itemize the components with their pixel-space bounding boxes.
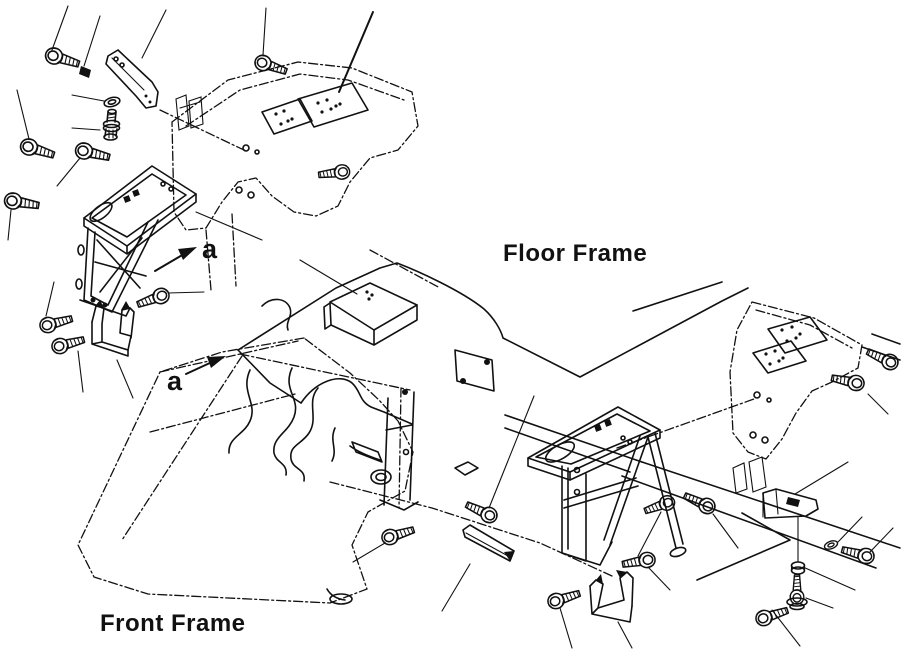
section-a-label-upper: a bbox=[202, 234, 218, 264]
plate-box-cover bbox=[324, 283, 417, 345]
small-shim-plate bbox=[176, 95, 203, 130]
flange-bolt-vertical bbox=[787, 575, 807, 610]
floor-frame-label: Floor Frame bbox=[503, 240, 647, 267]
hex-bolt-icon bbox=[50, 332, 86, 355]
section-a-label-lower: a bbox=[167, 366, 183, 396]
hex-bolt-icon bbox=[463, 498, 499, 526]
hex-bolt-icon bbox=[681, 489, 717, 517]
clip-nut bbox=[79, 66, 91, 78]
hex-bolt-icon bbox=[18, 137, 56, 163]
left-stand-bracket bbox=[76, 166, 196, 316]
parts-diagram-page: Floor Frame Front Frame a a bbox=[0, 0, 901, 649]
hex-bolt-icon bbox=[74, 141, 111, 165]
left-console-cover bbox=[172, 62, 418, 230]
hex-bolts bbox=[3, 46, 900, 628]
hex-bolt-icon bbox=[318, 164, 351, 182]
hex-bolt-icon bbox=[38, 311, 74, 334]
hex-bolt-icon bbox=[3, 192, 40, 214]
cover-plate bbox=[763, 489, 818, 518]
u-clamp-bottom bbox=[590, 570, 633, 622]
section-arrow-upper bbox=[155, 247, 197, 271]
plug-bolt bbox=[104, 110, 120, 141]
hex-bolt-icon bbox=[43, 46, 81, 72]
hex-bolt-icon bbox=[135, 286, 171, 311]
square-nut bbox=[792, 562, 805, 574]
front-frame-label: Front Frame bbox=[100, 610, 246, 637]
strap-plate bbox=[463, 525, 514, 561]
washer-icon bbox=[103, 96, 121, 109]
parts-diagram-canvas: Floor Frame Front Frame a a bbox=[0, 0, 901, 649]
hex-bolt-icon bbox=[546, 586, 582, 611]
washer-icon bbox=[823, 539, 838, 551]
hex-bolt-icon bbox=[380, 523, 416, 547]
floor-frame-plate bbox=[238, 263, 900, 580]
section-arrow-lower bbox=[186, 356, 226, 374]
right-console-cover bbox=[730, 302, 862, 493]
hex-bolt-icon bbox=[754, 603, 790, 628]
